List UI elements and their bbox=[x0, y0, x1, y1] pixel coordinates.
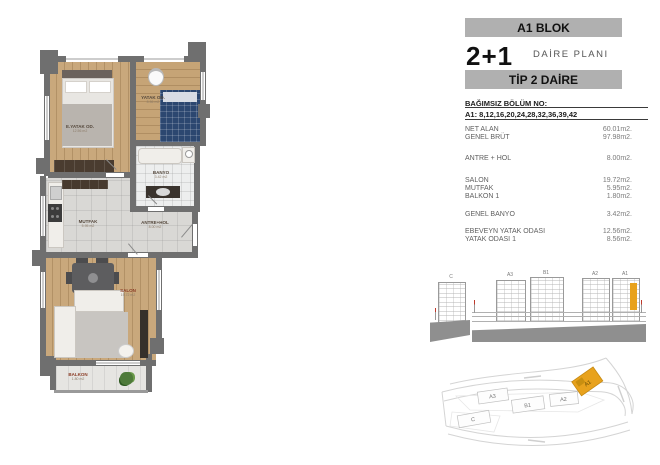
wardrobe bbox=[54, 160, 114, 172]
type-title: TİP 2 DAİRE bbox=[509, 73, 578, 87]
wall bbox=[130, 62, 136, 146]
area-value: 60.01m2. bbox=[603, 126, 632, 134]
pillow bbox=[65, 81, 87, 93]
room-area-text: 5.95 m2 bbox=[79, 224, 98, 228]
washing-machine-door bbox=[185, 150, 193, 158]
room-label: BALKON 1 bbox=[465, 193, 499, 201]
plan-label: DAİRE PLANI bbox=[533, 49, 609, 60]
survey-tick bbox=[641, 300, 642, 313]
elevation-ground-c bbox=[430, 320, 470, 342]
block-title: A1 BLOK bbox=[517, 21, 570, 35]
wall-pillar bbox=[198, 104, 210, 118]
site-label-a3: A3 bbox=[489, 394, 497, 401]
balcony-rail bbox=[54, 390, 148, 393]
wall-pillar bbox=[40, 356, 56, 376]
window bbox=[201, 72, 205, 100]
room-label-hall: ANTRE+HOL 8.00 m2 bbox=[141, 220, 169, 229]
window bbox=[157, 270, 161, 310]
room-area-text: 8.00 m2 bbox=[141, 225, 169, 229]
room-row: BALKON 1 1.80m2. bbox=[465, 193, 632, 201]
elevation-label-a1: A1 bbox=[622, 271, 628, 277]
stove bbox=[48, 204, 62, 222]
kitchen-cabinets bbox=[62, 180, 108, 189]
terrace-line bbox=[472, 316, 646, 317]
sofa bbox=[74, 290, 124, 312]
wall bbox=[136, 206, 194, 212]
room-value: 5.95m2. bbox=[607, 185, 632, 193]
terrace-line bbox=[472, 312, 646, 313]
bathtub bbox=[138, 148, 182, 164]
area-row: GENEL BRÜT 97.98m2. bbox=[465, 134, 632, 142]
room-area-text: 19.72 m2 bbox=[120, 293, 136, 297]
window bbox=[66, 57, 118, 61]
room-label-bathroom: BANYO 3.42 m2 bbox=[153, 170, 169, 179]
elevation-label-b1: B1 bbox=[543, 270, 549, 276]
room-label: SALON bbox=[465, 177, 489, 185]
pillow bbox=[89, 81, 111, 93]
elevation-label-c: C bbox=[449, 274, 453, 280]
room-area-text: 12.56 m2 bbox=[66, 129, 94, 133]
unit-type: 2+1 bbox=[466, 41, 513, 72]
room-value: 8.56m2. bbox=[607, 236, 632, 244]
window bbox=[144, 57, 184, 61]
area-row: NET ALAN 60.01m2. bbox=[465, 126, 632, 134]
elevation-label-a3: A3 bbox=[507, 272, 513, 278]
type-title-bar: TİP 2 DAİRE bbox=[465, 70, 622, 89]
room-row: ANTRE + HOL 8.00m2. bbox=[465, 155, 632, 163]
area-value: 97.98m2. bbox=[603, 134, 632, 142]
door-opening bbox=[148, 207, 164, 211]
bed-headboard bbox=[62, 70, 112, 78]
road-label bbox=[524, 376, 541, 378]
pillow bbox=[163, 92, 197, 102]
room-row: GENEL BANYO 3.42m2. bbox=[465, 211, 632, 219]
room-row: YATAK ODASI 1 8.56m2. bbox=[465, 236, 632, 244]
road-label bbox=[528, 440, 545, 442]
room-label: MUTFAK bbox=[465, 185, 493, 193]
wall-pillar bbox=[32, 250, 46, 266]
elevation-label-a2: A2 bbox=[592, 271, 598, 277]
divider-line bbox=[465, 107, 648, 108]
entrance-door-opening bbox=[193, 224, 197, 246]
room-value: 3.42m2. bbox=[607, 211, 632, 219]
room-row: EBEVEYN YATAK ODASI 12.56m2. bbox=[465, 228, 632, 236]
table-centerpiece bbox=[88, 273, 98, 283]
site-plan: A3 B1 A2 C A1 bbox=[428, 348, 660, 460]
room-value: 1.80m2. bbox=[607, 193, 632, 201]
room-area-text: 1.80 m2 bbox=[68, 377, 87, 381]
survey-tick bbox=[474, 300, 475, 313]
room-label: EBEVEYN YATAK ODASI bbox=[465, 228, 545, 236]
elevation-highlight-a1 bbox=[630, 283, 637, 310]
wall-pillar bbox=[40, 50, 58, 74]
plant bbox=[120, 372, 133, 385]
road-line bbox=[442, 392, 446, 426]
room-label: ANTRE + HOL bbox=[465, 155, 511, 163]
wall-pillar bbox=[188, 42, 206, 62]
room-label: YATAK ODASI 1 bbox=[465, 236, 516, 244]
terrace-line bbox=[472, 321, 646, 322]
room-area-text: 3.42 m2 bbox=[153, 175, 169, 179]
room-label-balcony: BALKON 1.80 m2 bbox=[68, 372, 87, 381]
room-row: SALON 19.72m2. bbox=[465, 177, 632, 185]
brochure-page: A1 BLOK 2+1 DAİRE PLANI TİP 2 DAİRE BAĞI… bbox=[0, 0, 660, 465]
area-label: NET ALAN bbox=[465, 126, 499, 134]
survey-tick bbox=[435, 308, 436, 320]
room-value: 12.56m2. bbox=[603, 228, 632, 236]
chair bbox=[148, 68, 164, 86]
road-line bbox=[606, 358, 632, 414]
room-area-text: 8.56 m2 bbox=[141, 100, 165, 104]
elevation-ground-main bbox=[472, 324, 646, 342]
sink bbox=[156, 188, 170, 196]
door-opening bbox=[106, 173, 124, 177]
room-value: 8.00m2. bbox=[607, 155, 632, 163]
wall bbox=[200, 56, 206, 146]
sofa-chaise bbox=[54, 306, 76, 358]
elevation-tower-c bbox=[438, 282, 466, 326]
site-label-b1: B1 bbox=[524, 403, 532, 410]
divider-line bbox=[465, 119, 648, 120]
room-label-salon: SALON 19.72 m2 bbox=[120, 288, 136, 297]
site-label-a2: A2 bbox=[560, 397, 567, 404]
room-label: GENEL BANYO bbox=[465, 211, 515, 219]
room-value: 19.72m2. bbox=[603, 177, 632, 185]
room-label-bedroom-1: YATAK OD. 8.56 m2 bbox=[141, 95, 165, 104]
balcony-door bbox=[96, 361, 140, 365]
window bbox=[41, 196, 45, 236]
wall-pillar bbox=[36, 158, 50, 174]
room-label-kitchen: MUTFAK 5.95 m2 bbox=[79, 219, 98, 228]
road-label bbox=[618, 386, 624, 402]
section-numbers: A1: 8,12,16,20,24,28,32,36,39,42 bbox=[465, 110, 577, 119]
window bbox=[41, 272, 45, 308]
area-label: GENEL BRÜT bbox=[465, 134, 509, 142]
window bbox=[45, 96, 49, 140]
armchair bbox=[118, 344, 134, 358]
tv-unit bbox=[140, 310, 148, 358]
room-row: MUTFAK 5.95m2. bbox=[465, 185, 632, 193]
kitchen-sink bbox=[50, 186, 62, 200]
block-title-bar: A1 BLOK bbox=[465, 18, 622, 37]
wall bbox=[130, 146, 136, 212]
wall bbox=[156, 252, 198, 258]
wall-pillar bbox=[150, 338, 164, 354]
room-label-master-bedroom: E.YATAK OD. 12.56 m2 bbox=[66, 124, 94, 133]
stove-burners bbox=[51, 207, 54, 210]
